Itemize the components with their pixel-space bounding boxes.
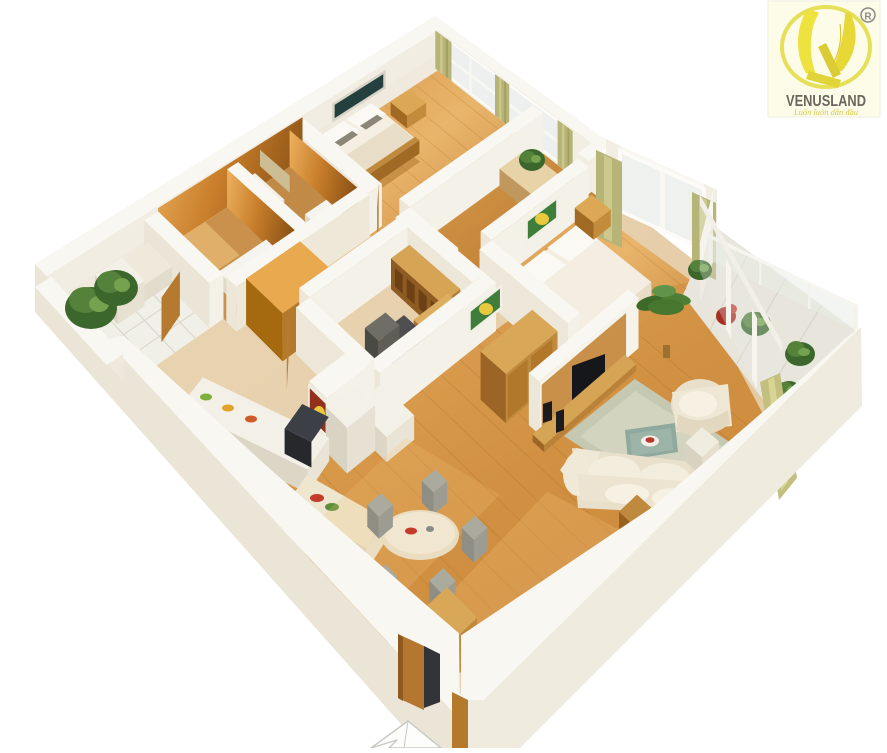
svg-text:Luôn luôn dẫn đầu: Luôn luôn dẫn đầu — [793, 107, 858, 117]
svg-text:R: R — [864, 12, 872, 23]
